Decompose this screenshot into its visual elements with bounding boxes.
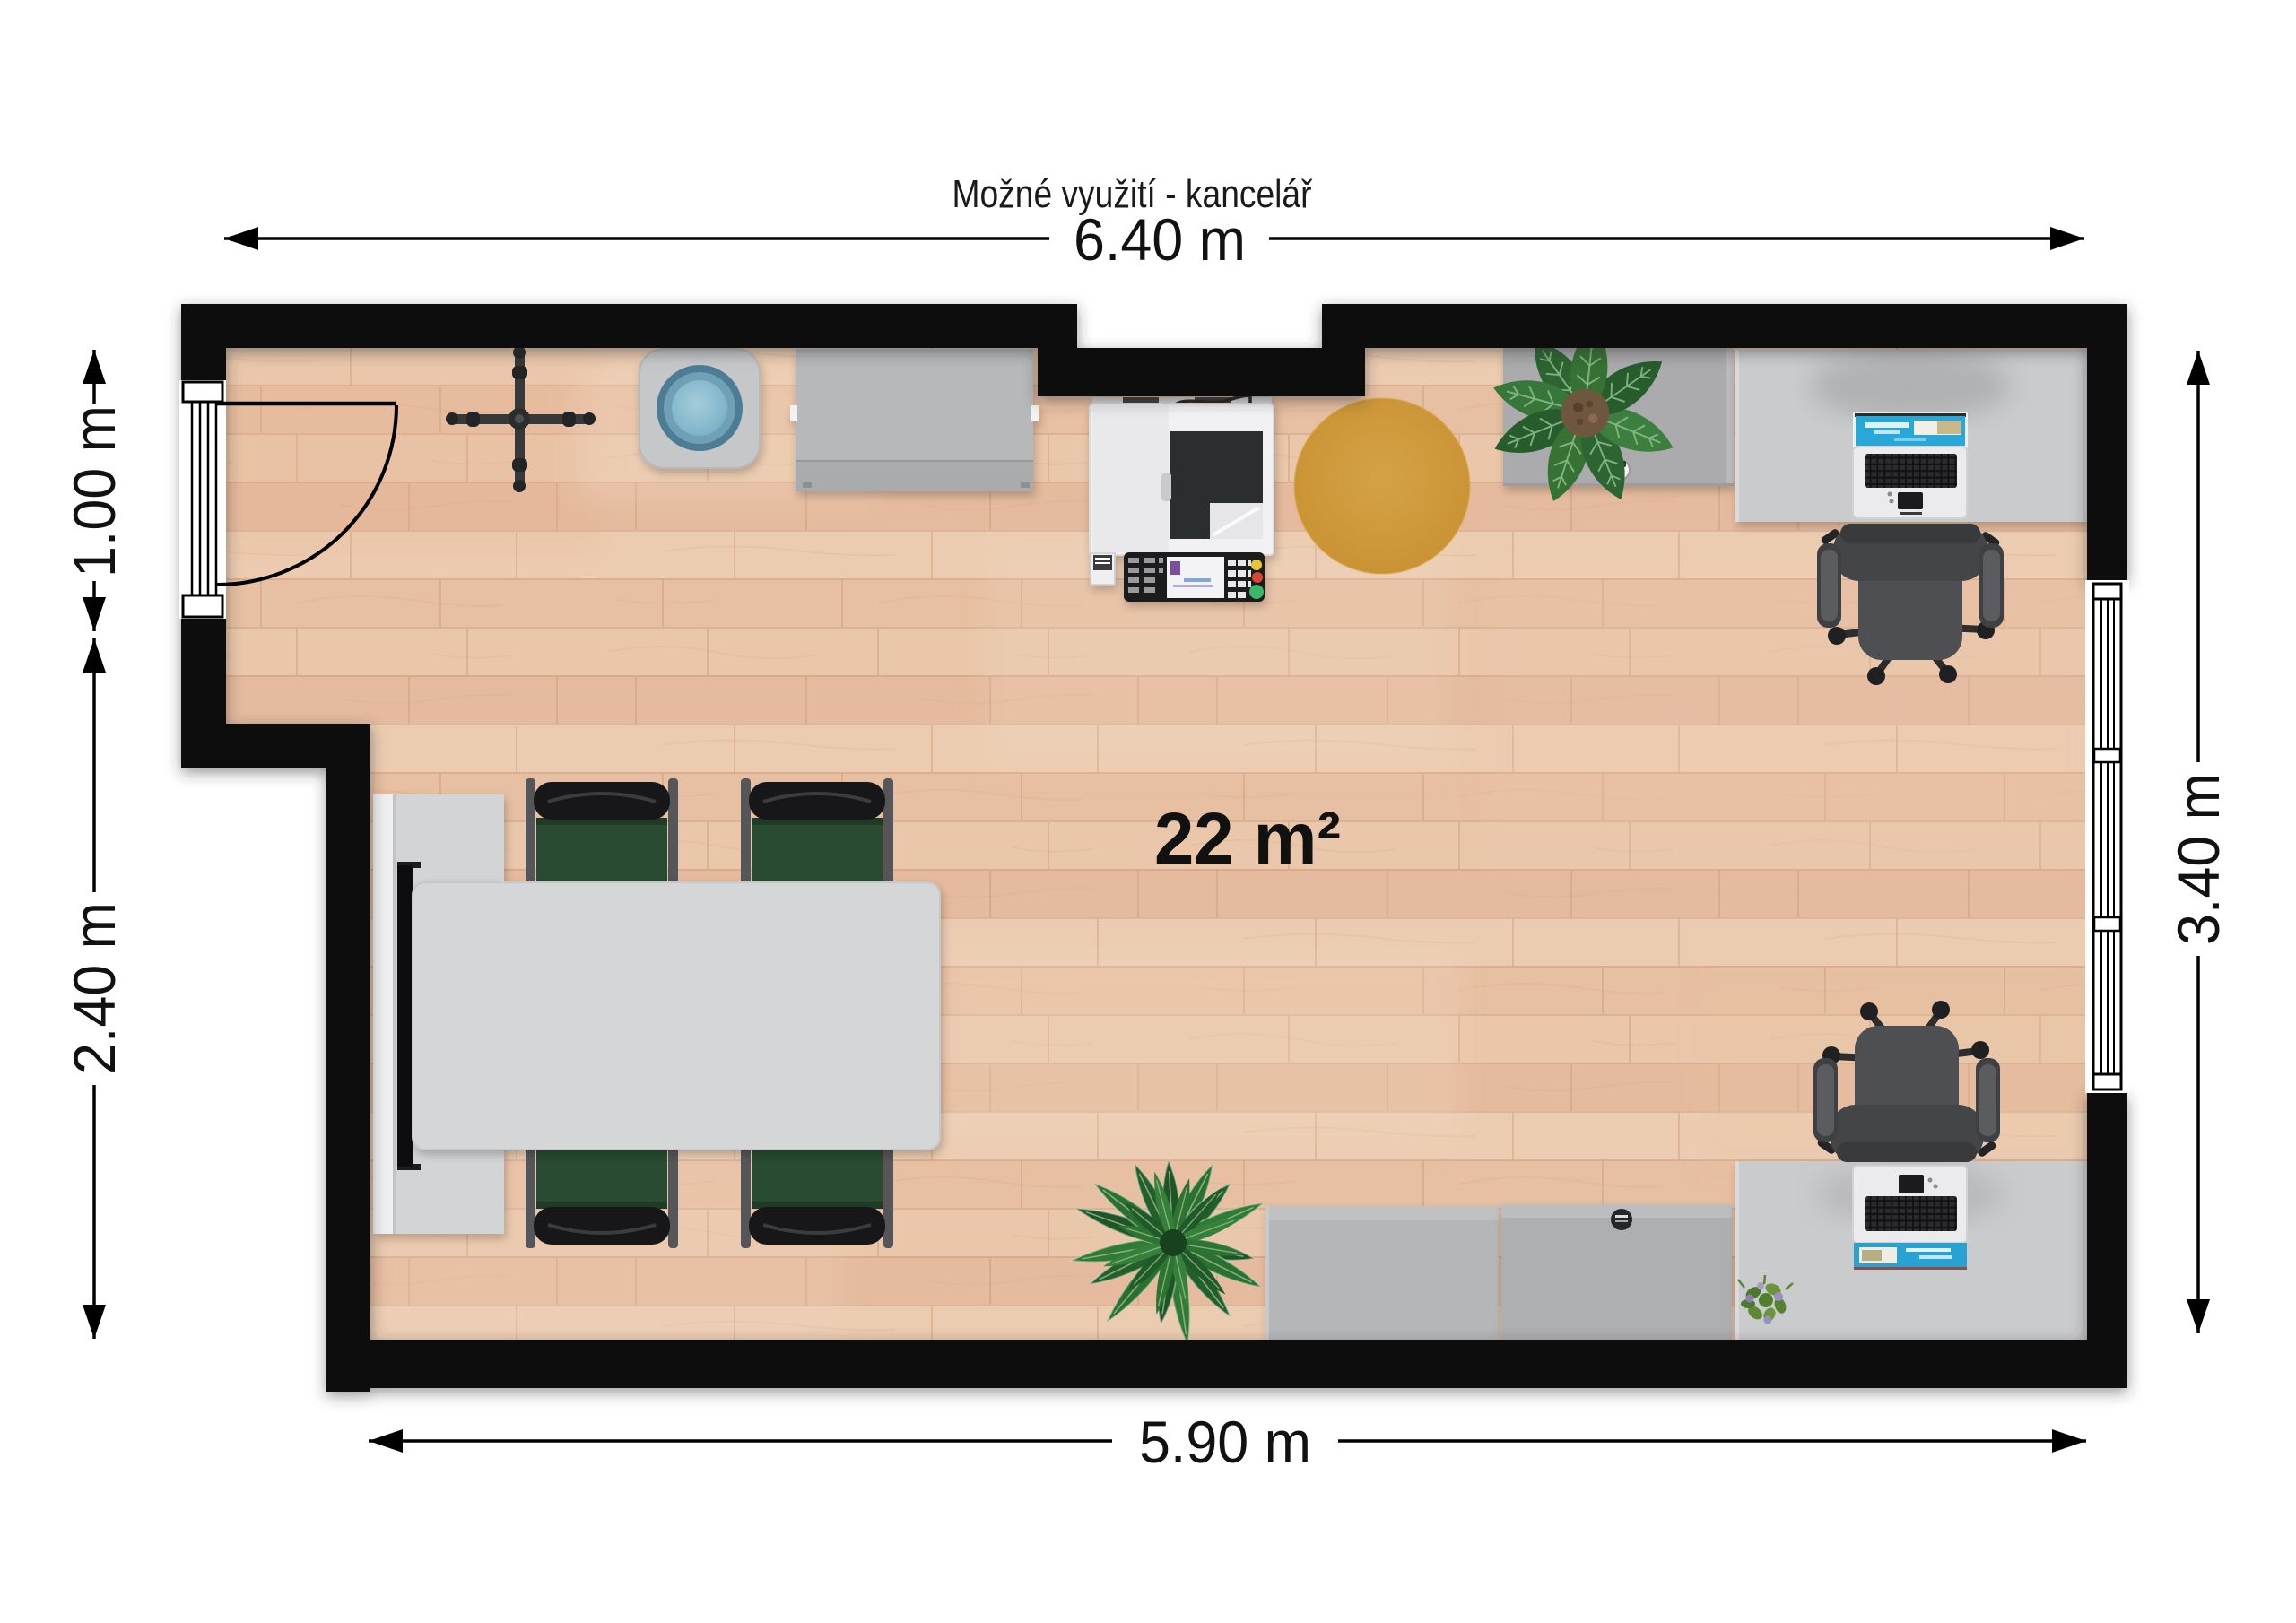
- svg-text:2.40 m: 2.40 m: [61, 902, 127, 1074]
- svg-text:1.00 m: 1.00 m: [61, 405, 127, 577]
- svg-text:22 m²: 22 m²: [1154, 798, 1341, 880]
- svg-text:6.40 m: 6.40 m: [1074, 206, 1246, 273]
- svg-text:5.90 m: 5.90 m: [1139, 1409, 1311, 1475]
- svg-text:3.40 m: 3.40 m: [2165, 773, 2231, 945]
